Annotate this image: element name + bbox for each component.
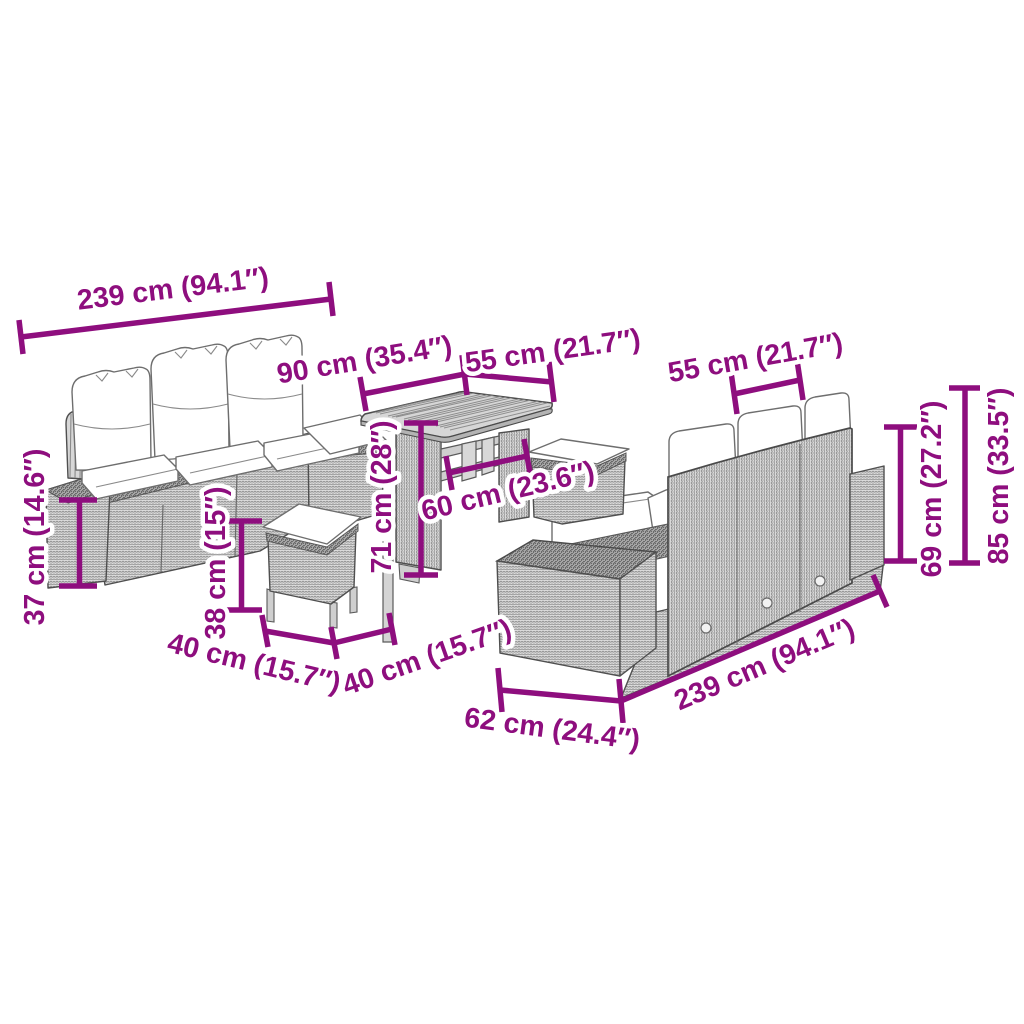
svg-text:37 cm (14.6″): 37 cm (14.6″): [19, 449, 51, 626]
svg-text:71 cm (28″): 71 cm (28″): [366, 420, 398, 573]
svg-text:38 cm (15″): 38 cm (15″): [200, 486, 232, 639]
svg-text:69 cm (27.2″): 69 cm (27.2″): [916, 401, 948, 578]
svg-text:85 cm (33.5″): 85 cm (33.5″): [983, 388, 1015, 565]
